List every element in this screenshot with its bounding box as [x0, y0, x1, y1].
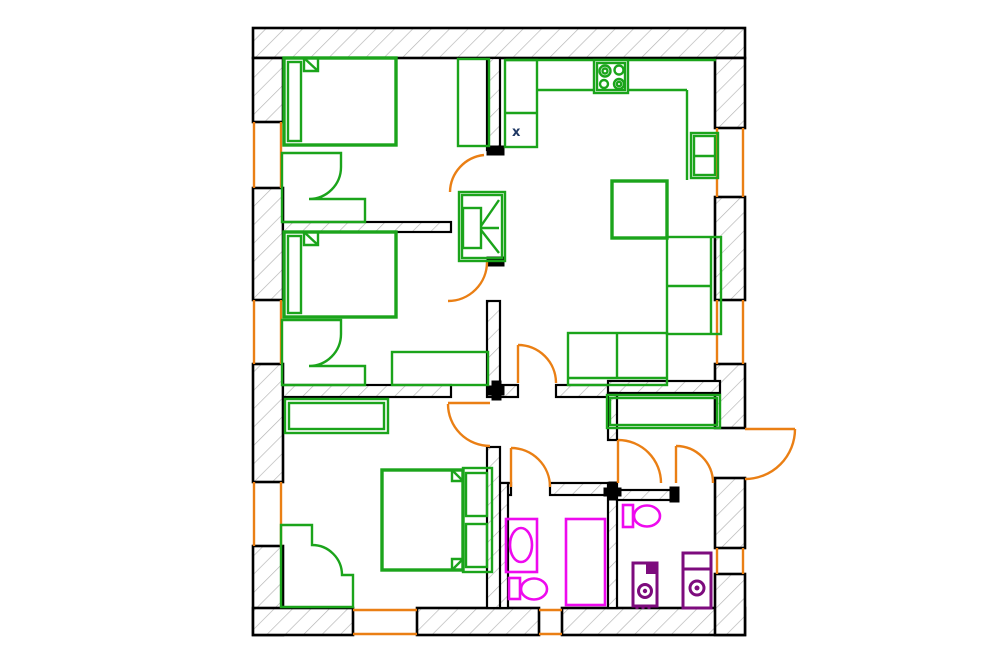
- bedroom2-bed: [284, 232, 396, 317]
- bathroom2-washing-machine: [683, 553, 711, 608]
- bathroom1-bathtub: [566, 519, 605, 605]
- bathroom2-toilet: [623, 505, 660, 527]
- bedroom3-cabinet: [285, 399, 388, 433]
- bedroom1-wardrobe: [458, 59, 489, 146]
- tv-unit: [459, 192, 505, 261]
- dining-table: [612, 181, 667, 238]
- living-sofa: [568, 237, 721, 385]
- svg-text:x: x: [512, 125, 521, 140]
- floor-plan-canvas: x: [0, 0, 1000, 665]
- bedroom2-cabinet: [392, 352, 488, 385]
- hallway-cabinet: [607, 395, 720, 428]
- bathroom2-boiler: [633, 563, 657, 609]
- bedroom3-double-bed: [382, 468, 492, 572]
- plan-layers: x: [253, 28, 795, 635]
- floor-plan-page: x: [0, 0, 1000, 665]
- bedroom2-desk: [282, 320, 365, 385]
- kitchen-fridge: [691, 133, 718, 178]
- bathroom1-sink: [506, 519, 537, 572]
- bedroom1-bed: [284, 58, 396, 145]
- bathroom1-toilet: [509, 578, 547, 600]
- bedroom3-desk: [281, 525, 353, 607]
- bedroom1-desk: [282, 153, 365, 222]
- kitchen-x-marker: x: [512, 125, 521, 140]
- kitchen-stove: [594, 60, 628, 93]
